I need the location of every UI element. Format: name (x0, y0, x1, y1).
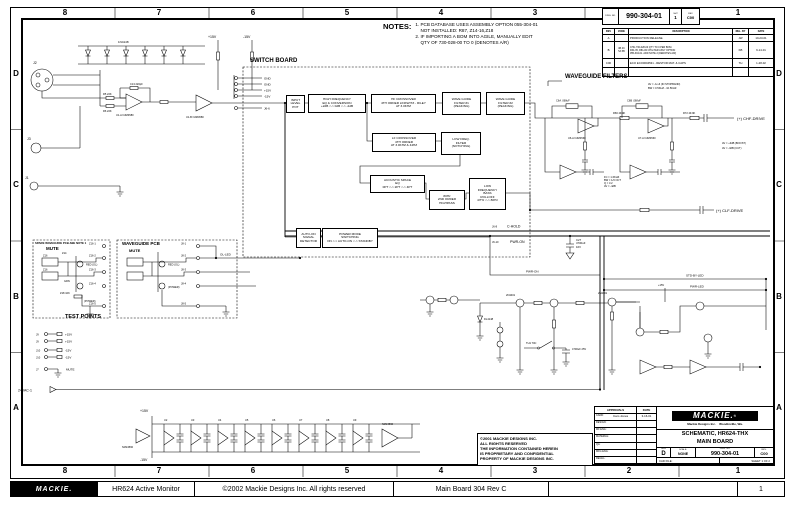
approval-row: DESIGN: (595, 420, 656, 427)
mackie-logo-area: MACKIE.® Mackie Designs Inc. Woodinville… (657, 407, 773, 430)
sheet-label: SHEET 1 OF 2 (751, 459, 773, 463)
zone-row-right: C (774, 180, 784, 189)
footer-board-rev: Main Board 304 Rev C (394, 482, 549, 496)
svg-text:2N4401: 2N4401 (598, 291, 608, 295)
svg-text:J6-6: J6-6 (264, 107, 270, 111)
svg-text:AV = -3dB (CUT): AV = -3dB (CUT) (722, 146, 742, 150)
svg-text:-15V: -15V (243, 35, 251, 39)
svg-text:+15V: +15V (264, 89, 271, 93)
svg-text:-15V: -15V (140, 458, 148, 462)
footer-copyright: ©2002 Mackie Designs Inc. All rights res… (195, 482, 394, 496)
title-line-1: SCHEMATIC, HR624-THX (682, 431, 748, 439)
svg-text:RED (OL): RED (OL) (86, 263, 98, 267)
svg-text:PWR-LED: PWR-LED (690, 285, 705, 289)
cad-file-label: CAD FILE: (657, 458, 720, 463)
svg-text:-15V: -15V (264, 95, 270, 99)
dwg-number: 990-304-01 (619, 9, 670, 24)
section-label-waveguide-pcb: WAVEGUIDE PCB (122, 241, 160, 246)
notes: NOTES: 1. PCB DATABASE USES ASSEMBLY OPT… (383, 22, 538, 46)
block-bass-rolloff: LOW FREQUENCY BASS ROLLOFF 47Hz <-> 80Hz (469, 178, 506, 210)
zone-col-bottom: 8 (55, 466, 75, 475)
svg-text:U5: U5 (245, 418, 249, 422)
block-acoustic-space-eq: ACOUSTIC SPACE EQ 0PT <-> 2PT <-> 4PT (370, 175, 425, 193)
schematic-sheet: { "zones": {"columns":["8","7","6","5","… (0, 0, 793, 513)
svg-text:+15V: +15V (65, 332, 72, 336)
notes-heading: NOTES: (383, 22, 411, 46)
svg-text:J8-4: J8-4 (181, 282, 187, 286)
svg-text:+15V: +15V (65, 339, 72, 343)
svg-text:U7: U7 (299, 418, 303, 422)
svg-text:J6-8: J6-8 (492, 225, 498, 229)
svg-text:Z16-5: Z16-5 (89, 302, 96, 306)
svg-text:Z14: Z14 (62, 251, 67, 255)
block-lf-notch-filter: LOW FREQ. FILTER (NOTCHING) (441, 132, 481, 155)
revision-row-empty (603, 67, 773, 76)
revision-header: REV ZONE DESCRIPTION REL. BY DATE (603, 29, 773, 34)
svg-text:R6 22K: R6 22K (103, 109, 112, 113)
svg-text:+15V: +15V (140, 409, 149, 413)
footer-page-number: 1 (738, 482, 784, 496)
mute-waveguide-pcb: RED (OL) (POWER) J8-1 J8-2 J8-3 J8-4 J8-… (117, 240, 301, 318)
svg-text:U7-A NJM4560: U7-A NJM4560 (638, 136, 656, 140)
section-label-spare-pcb: SPARE WAVEGUIDE PCB-SEE NOTE 1 (35, 241, 86, 245)
svg-text:-15V: -15V (65, 355, 71, 359)
zone-row-left: D (11, 69, 21, 78)
svg-text:NJM4560: NJM4560 (382, 422, 394, 426)
svg-text:J8-1: J8-1 (181, 242, 187, 246)
approval-row: REGUL: (595, 456, 656, 463)
svg-text:C-HOLD: C-HOLD (507, 225, 521, 229)
svg-text:U3: U3 (191, 418, 195, 422)
revision-table: REV ZONE DESCRIPTION REL. BY DATE A PROD… (602, 28, 774, 77)
svg-text:U4: U4 (218, 418, 222, 422)
section-label-spare-mute: MUTE (46, 246, 59, 251)
svg-text:R66 49.9K: R66 49.9K (613, 111, 626, 115)
zone-row-left: B (11, 292, 21, 301)
svg-text:GRN: GRN (64, 279, 70, 283)
footer-mackie-logo: MACKIE. (11, 482, 98, 496)
svg-text:J6-10: J6-10 (492, 240, 499, 244)
svg-text:J10: J10 (36, 348, 41, 352)
section-label-switch-board: SWITCH BOARD (250, 58, 297, 64)
scale-cell: SCALE:NONE (671, 448, 696, 457)
zone-row-right: D (774, 69, 784, 78)
svg-text:Z16: Z16 (43, 268, 48, 272)
svg-text:C6A .068uF: C6A .068uF (556, 99, 570, 103)
block-waveguide-filter-2: WAVE GUIDE FILTER #2 (PEAKING) (486, 92, 525, 115)
svg-text:J9: J9 (36, 339, 39, 343)
block-waveguide-filter-1: WAVE GUIDE FILTER #1 (PEAKING) (442, 92, 481, 115)
block-hf-eq: HIGH FREQUENCY EQ & CONVERSION +2dB <-> … (308, 94, 366, 113)
svg-text:J8-3: J8-3 (181, 268, 187, 272)
test-points: J9 J9 J10 J10 +15V +15V -15V -15V J7 MUT… (18, 332, 601, 392)
sheet-row: CAD FILE: SHEET 1 OF 2 (657, 458, 773, 463)
mackie-logo: MACKIE.® (672, 411, 758, 421)
company-line: Mackie Designs Inc. Woodinville, Wa. (687, 422, 743, 426)
size-cell: SIZED (657, 448, 671, 457)
approval-row: MF ENG: (595, 427, 656, 434)
svg-text:Z16: Z16 (43, 254, 48, 258)
svg-text:-15V: -15V (65, 348, 71, 352)
title-line-2: MAIN BOARD (697, 439, 733, 447)
svg-text:Z16-2: Z16-2 (89, 254, 96, 258)
svg-text:BW = 0.5KHZ - 10.5KHZ: BW = 0.5KHZ - 10.5KHZ (648, 86, 677, 90)
approval-row: CADD:Cam Jones3-16-01 (595, 413, 656, 420)
zone-col-top: 7 (149, 8, 169, 17)
power-control: J6-8 C-HOLD J6-10 PWR-ON PWR-ON STD-BY-L… (420, 225, 767, 375)
zone-col-top: 8 (55, 8, 75, 17)
svg-text:J10: J10 (36, 355, 41, 359)
section-label-wg-mute: MUTE (129, 248, 140, 253)
svg-text:+15V: +15V (208, 35, 217, 39)
zone-row-left: A (11, 403, 21, 412)
section-label-test-points: TEST POINTS (65, 314, 101, 320)
approval-row: MFG ENG: (595, 449, 656, 456)
svg-text:RED (OL): RED (OL) (168, 263, 180, 267)
doc-number-block: DWG. NO. 990-304-01 SHT1 REVC00 (602, 8, 700, 25)
svg-text:PWR-ON: PWR-ON (510, 240, 525, 244)
rev-cell: REV.C00 (755, 448, 773, 457)
svg-text:U2: U2 (164, 418, 168, 422)
svg-text:R72 49.9K: R72 49.9K (683, 111, 696, 115)
zone-col-bottom: 6 (243, 466, 263, 475)
svg-text:Z16-4: Z16-4 (89, 282, 96, 286)
zone-row-right: A (774, 403, 784, 412)
svg-text:MUTE: MUTE (66, 367, 75, 371)
svg-text:J9: J9 (36, 332, 39, 336)
svg-text:OL-LED: OL-LED (220, 253, 232, 257)
svg-text:AV = -1/+6 (IN STOPBAND): AV = -1/+6 (IN STOPBAND) (648, 82, 680, 86)
block-hf-crossover: HF CROSSOVER 4TH ORDER LINKWITZ - RILEY … (371, 94, 436, 113)
power-rails: +15V -15V NJM4560 U2 U3 U4 U5 U6 U7 U8 U… (122, 409, 420, 462)
svg-text:C6B .068uF: C6B .068uF (627, 99, 641, 103)
svg-text:U1-A NJM4580: U1-A NJM4580 (116, 113, 134, 117)
svg-text:U9: U9 (353, 418, 357, 422)
mute-spare-pcb: Z16 Z16 Z14 RED (OL) GRN Z18 10K (POWER)… (33, 240, 110, 318)
svg-text:1N4148: 1N4148 (118, 40, 129, 44)
block-80hz-highpass: 80Hz 2ND ORDER HIGHPASS (429, 190, 465, 210)
sheet-cell: SHT1 (670, 9, 682, 24)
cap-c27-label: C27 4700uF 16V (576, 239, 586, 249)
revision-row: A PRODUCTION RELEASE. JW 10-23-01 (603, 34, 773, 41)
svg-text:J2: J2 (33, 61, 37, 65)
svg-text:C13 220pF: C13 220pF (130, 82, 143, 86)
zone-col-bottom: 2 (619, 466, 639, 475)
zone-col-top: 1 (728, 8, 748, 17)
footer-bar: MACKIE. HR624 Active Monitor ©2002 Macki… (10, 481, 785, 497)
approval-row: MATERIAL: (595, 434, 656, 441)
zone-col-top: 6 (243, 8, 263, 17)
svg-text:4700uF 25V: 4700uF 25V (572, 347, 586, 351)
copyright-block: ©2001 MACKIE DESIGNS INC. ALL RIGHTS RES… (477, 433, 593, 466)
svg-text:+15V: +15V (658, 283, 664, 287)
svg-text:Z16-1: Z16-1 (89, 242, 96, 246)
footer-empty-cell (549, 482, 738, 496)
notes-body: 1. PCB DATABASE USES ASSEMBLY OPTION 055… (415, 22, 537, 46)
svg-text:U1-B NJM4580: U1-B NJM4580 (186, 115, 204, 119)
svg-text:AV = +3dB (BOOST): AV = +3dB (BOOST) (722, 141, 746, 145)
revision-row: C00 ECO ECO0004531 - RESTOR MAT. & CAPS … (603, 58, 773, 67)
svg-text:J8-5: J8-5 (181, 302, 187, 306)
svg-text:(+) CHF-DRIVE: (+) CHF-DRIVE (737, 116, 765, 121)
revision-row: B 4B 4C 5A 5B CHG 730-028-00 QTY TO 0 PE… (603, 41, 773, 58)
waveguide-filters: AV = -1/+6 (IN STOPBAND) BW = 0.5KHZ - 1… (529, 81, 765, 214)
zone-col-bottom: 3 (525, 466, 545, 475)
svg-text:NJM4560: NJM4560 (122, 445, 134, 449)
svg-text:U6-A NJM4560: U6-A NJM4560 (568, 136, 586, 140)
svg-text:(+) CLF-DRIVE: (+) CLF-DRIVE (716, 208, 744, 213)
svg-text:TH1 70C: TH1 70C (526, 341, 537, 345)
dwg-label-cell: DWG. NO. (603, 9, 619, 24)
svg-text:DL4148: DL4148 (484, 317, 494, 321)
filter-note: FC = 1.6KHZ BW = 1/3 OCT Q = 3.2 AV = -4… (604, 176, 621, 188)
svg-text:J8-2: J8-2 (181, 254, 187, 258)
approvals-table: APPROVALS DATE CADD:Cam Jones3-16-01 DES… (595, 407, 657, 463)
block-input-level-pot: INPUT LEVEL POT (286, 95, 305, 113)
svg-text:24VAC-1: 24VAC-1 (18, 389, 32, 393)
svg-text:U6: U6 (272, 418, 276, 422)
svg-text:STD-BY-LED: STD-BY-LED (686, 274, 704, 278)
zone-col-top: 5 (337, 8, 357, 17)
zone-col-bottom: 1 (728, 466, 748, 475)
drawing-title: SCHEMATIC, HR624-THX MAIN BOARD (657, 430, 773, 448)
block-auto-on-detector: AUTO-ON SIGNAL DETECTOR (296, 228, 321, 248)
zone-row-left: C (11, 180, 21, 189)
svg-text:Z18 10K: Z18 10K (60, 291, 70, 295)
approval-row: QA: (595, 442, 656, 449)
svg-text:(POWER): (POWER) (168, 285, 180, 289)
block-power-mode: POWER MODE SWITCHING ON <-> AUTO-ON <-> … (322, 228, 378, 248)
title-block: APPROVALS DATE CADD:Cam Jones3-16-01 DES… (594, 406, 774, 464)
dwg-no-cell: DWG. NO.990-304-01 (696, 448, 755, 457)
svg-text:GND: GND (264, 77, 272, 81)
block-lf-crossover: LF CROSSOVER 4TH ORDER AT 3.0KHZ & 44HZ (372, 133, 436, 152)
svg-text:J7: J7 (36, 367, 39, 371)
zone-col-top: 3 (525, 8, 545, 17)
svg-text:U8: U8 (326, 418, 330, 422)
section-label-waveguide-filters: WAVEGUIDE FILTERS (565, 74, 627, 80)
rev-cell: REVC00 (682, 9, 699, 24)
svg-text:J3: J3 (27, 137, 31, 141)
svg-text:R5 22K: R5 22K (103, 92, 112, 96)
zone-col-bottom: 5 (337, 466, 357, 475)
zone-col-top: 4 (431, 8, 451, 17)
svg-text:2N4401: 2N4401 (506, 293, 516, 297)
svg-text:PWR-ON: PWR-ON (526, 270, 539, 274)
footer-product: HR624 Active Monitor (98, 482, 195, 496)
size-scale-row: SIZED SCALE:NONE DWG. NO.990-304-01 REV.… (657, 448, 773, 458)
svg-text:J1: J1 (25, 176, 29, 180)
svg-text:GND: GND (264, 83, 272, 87)
zone-col-bottom: 7 (149, 466, 169, 475)
input-stage: J2 1N4148 +15V -15V R5 22K R6 22K U1-A N… (25, 35, 286, 196)
zone-col-bottom: 4 (431, 466, 451, 475)
zone-row-right: B (774, 292, 784, 301)
svg-text:Z16-3: Z16-3 (89, 268, 96, 272)
